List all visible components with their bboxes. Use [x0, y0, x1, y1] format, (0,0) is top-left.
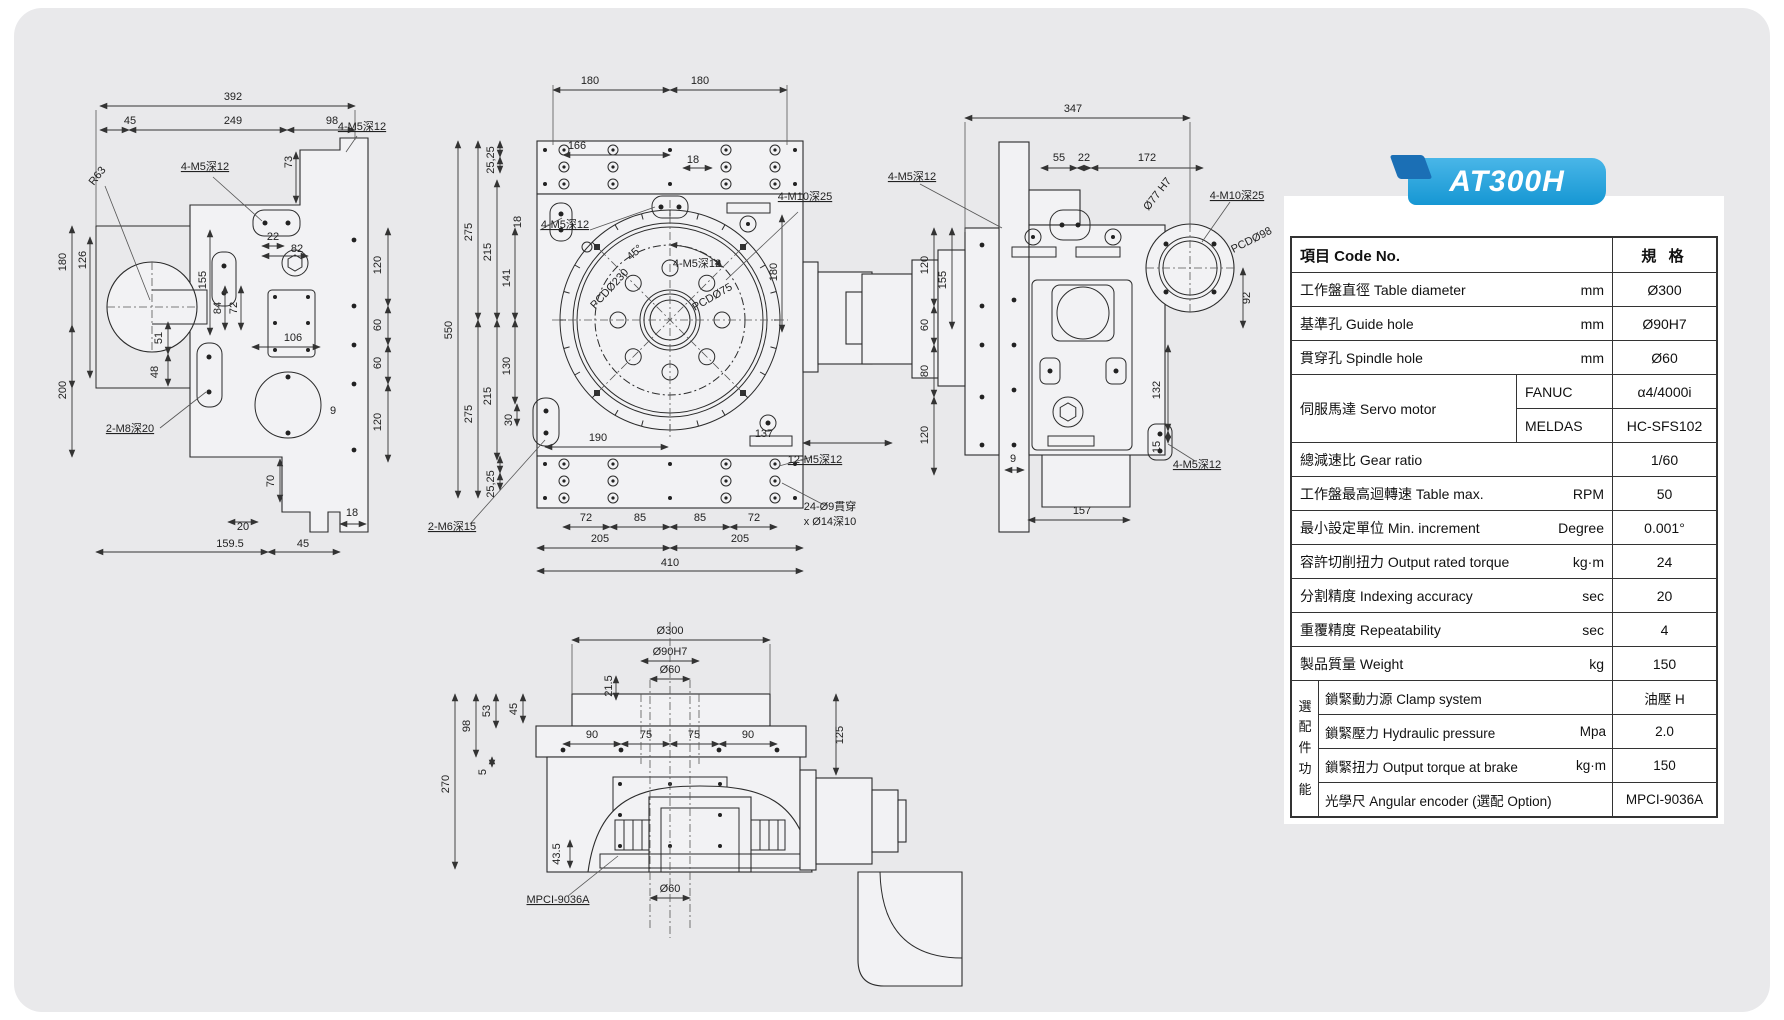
hole-dot — [562, 479, 565, 482]
hole-dot — [273, 295, 277, 299]
spec-value: 油壓 H — [1612, 681, 1716, 714]
dim-label: 60 — [372, 357, 384, 369]
spec-row: 重覆精度 Repeatabilitysec4 — [1292, 612, 1716, 646]
spec-row: 基準孔 Guide holemmØ90H7 — [1292, 306, 1716, 340]
dim-label: 21.5 — [603, 675, 615, 696]
hole-dot — [773, 148, 776, 151]
dim-label: 392 — [224, 91, 242, 103]
dim-label: 155 — [197, 271, 209, 289]
dim-label: 12-M5深12 — [788, 453, 842, 466]
dim-label: 180 — [768, 263, 780, 281]
spec-row: 鎖緊扭力 Output torque at brakekg·m150 — [1319, 748, 1716, 782]
spec-value: 20 — [1612, 579, 1716, 612]
leader-line — [470, 440, 545, 524]
spec-row: 製品質量 Weightkg150 — [1292, 646, 1716, 680]
hole-dot — [724, 148, 727, 151]
hole-dot — [775, 748, 780, 753]
model-badge-label: AT300H — [1449, 165, 1564, 199]
spec-value: MPCI-9036A — [1612, 783, 1716, 816]
hole-dot — [773, 479, 776, 482]
right-side-view — [846, 142, 1234, 532]
dim-label: 22 — [267, 231, 279, 243]
hole-dot — [773, 462, 776, 465]
dim-label: 275 — [463, 405, 475, 423]
spec-unit: RPM — [1573, 486, 1604, 502]
dim-label: 180 — [691, 75, 709, 87]
dim-label: 550 — [443, 321, 455, 339]
hole-dot — [306, 321, 310, 325]
hole-dot — [724, 165, 727, 168]
hole-dot — [1012, 388, 1017, 393]
spec-value: 150 — [1612, 749, 1716, 782]
dim-label: 180 — [581, 75, 599, 87]
dim-label: 80 — [919, 365, 931, 377]
hole-dot — [1012, 443, 1017, 448]
servo-brand: FANUC — [1517, 375, 1612, 408]
hole-dot — [668, 148, 672, 152]
spec-row: 最小設定單位 Min. incrementDegree0.001° — [1292, 510, 1716, 544]
hole-dot — [980, 243, 985, 248]
spec-row: 鎖緊壓力 Hydraulic pressureMpa2.0 — [1319, 714, 1716, 748]
spec-row-label: 重覆精度 Repeatabilitysec — [1292, 613, 1612, 646]
hole-dot — [980, 304, 985, 309]
dim-label: 9 — [1010, 453, 1016, 465]
dim-label: x Ø14深10 — [804, 515, 857, 528]
spec-row-label: 製品質量 Weightkg — [1292, 647, 1612, 680]
dim-label: 125 — [834, 726, 846, 744]
dim-label: 20 — [237, 521, 249, 533]
hole-dot — [306, 348, 310, 352]
spec-label-text: 貫穿孔 Spindle hole — [1300, 348, 1423, 368]
spec-row: 容許切削扭力 Output rated torquekg·m24 — [1292, 544, 1716, 578]
hole-dot — [352, 304, 357, 309]
spec-row-label: 工作盤直徑 Table diametermm — [1292, 273, 1612, 306]
spec-row-label: 鎖緊扭力 Output torque at brakekg·m — [1319, 749, 1612, 782]
hole-dot — [562, 182, 565, 185]
spec-row-label: 容許切削扭力 Output rated torquekg·m — [1292, 545, 1612, 578]
spec-header-spec: 規 格 — [1612, 238, 1716, 272]
leader-line — [920, 184, 1002, 228]
spec-row: 總減速比 Gear ratio1/60 — [1292, 442, 1716, 476]
dim-label: 155 — [937, 271, 949, 289]
dim-label: 205 — [591, 533, 609, 545]
dim-label: 120 — [372, 256, 384, 274]
hole-dot — [724, 479, 727, 482]
catalog-page: 3924524998R634-M5深124-M5深127322821206060… — [0, 0, 1784, 1020]
dim-label: 130 — [501, 357, 513, 375]
hole-dot — [562, 148, 565, 151]
spec-value: Ø90H7 — [1612, 307, 1716, 340]
spec-value: 0.001° — [1612, 511, 1716, 544]
hole-dot — [619, 748, 624, 753]
hole-dot — [543, 462, 547, 466]
spec-label-text: 工作盤直徑 Table diameter — [1300, 280, 1466, 300]
dim-label: 4-M5深12 — [888, 170, 936, 183]
dim-label: 60 — [372, 319, 384, 331]
dim-label: 106 — [284, 332, 302, 344]
hole-dot — [980, 443, 985, 448]
spec-table: 項目 Code No.規 格工作盤直徑 Table diametermmØ300… — [1290, 236, 1718, 818]
spec-row-label: 鎖緊動力源 Clamp system — [1319, 681, 1612, 714]
spec-row: 貫穿孔 Spindle holemmØ60 — [1292, 340, 1716, 374]
dim-label: 132 — [1151, 381, 1163, 399]
hole-dot — [980, 343, 985, 348]
dim-label: 75 — [640, 729, 652, 741]
spec-value: Ø60 — [1612, 341, 1716, 374]
spec-label-text: 鎖緊動力源 Clamp system — [1325, 688, 1482, 708]
spec-unit: Degree — [1558, 520, 1604, 536]
hole-dot — [306, 295, 310, 299]
spec-row-label: 分割精度 Indexing accuracysec — [1292, 579, 1612, 612]
spec-row-label: 基準孔 Guide holemm — [1292, 307, 1612, 340]
dim-label: 75 — [688, 729, 700, 741]
spec-row-label: 伺服馬達 Servo motor — [1292, 375, 1516, 442]
dim-label: 410 — [661, 557, 679, 569]
dim-label: 275 — [463, 223, 475, 241]
dim-label: 92 — [1241, 292, 1253, 304]
spec-row: 鎖緊動力源 Clamp system油壓 H — [1319, 681, 1716, 714]
dim-label: 120 — [919, 256, 931, 274]
dim-label: 73 — [283, 156, 295, 168]
dim-label: 4-M5深12 — [338, 120, 386, 133]
spec-option-group: 選 配 件 功 能鎖緊動力源 Clamp system油壓 H鎖緊壓力 Hydr… — [1292, 680, 1716, 816]
spec-row-label: 光學尺 Angular encoder (選配 Option) — [1319, 783, 1612, 816]
dim-label: 24-Ø9貫穿 — [804, 499, 857, 513]
dim-label: 98 — [326, 115, 338, 127]
dim-label: 72 — [748, 512, 760, 524]
dim-label: 4-M5深12 — [1173, 458, 1221, 471]
spec-value: 50 — [1612, 477, 1716, 510]
hole-dot — [793, 496, 797, 500]
dim-label: Ø60 — [660, 883, 681, 895]
dim-label: MPCI-9036A — [527, 894, 591, 906]
hole-dot — [562, 462, 565, 465]
spec-header-row: 項目 Code No.規 格 — [1292, 238, 1716, 272]
spec-label-text: 鎖緊扭力 Output torque at brake — [1325, 756, 1518, 776]
hole-dot — [611, 182, 614, 185]
spec-label-text: 鎖緊壓力 Hydraulic pressure — [1325, 722, 1495, 742]
hole-dot — [718, 813, 722, 817]
hole-dot — [543, 148, 547, 152]
hole-dot — [1212, 290, 1217, 295]
dim-label: 18 — [512, 216, 524, 228]
hole-dot — [273, 321, 277, 325]
hole-dot — [724, 462, 727, 465]
servo-brand: MELDAS — [1517, 408, 1612, 442]
hole-dot — [611, 496, 614, 499]
hole-dot — [543, 182, 547, 186]
spec-label-text: 容許切削扭力 Output rated torque — [1300, 552, 1509, 572]
dim-label: R63 — [87, 165, 109, 188]
hole-dot — [561, 748, 566, 753]
dim-label: 45 — [508, 703, 520, 715]
spec-value: 150 — [1612, 647, 1716, 680]
option-group-rows: 鎖緊動力源 Clamp system油壓 H鎖緊壓力 Hydraulic pre… — [1318, 681, 1716, 816]
hole-dot — [618, 844, 622, 848]
dim-label: PCDØ98 — [1229, 225, 1274, 256]
hole-dot — [773, 165, 776, 168]
dim-label: 18 — [346, 507, 358, 519]
dim-label: 30 — [503, 414, 515, 426]
dim-label: 70 — [265, 475, 277, 487]
hole-dot — [717, 748, 722, 753]
dim-label: Ø300 — [657, 625, 684, 637]
dim-label: 2-M8深20 — [106, 422, 154, 435]
spec-row: 分割精度 Indexing accuracysec20 — [1292, 578, 1716, 612]
dim-label: 45 — [124, 115, 136, 127]
spec-label-text: 工作盤最高迴轉速 Table max. — [1300, 484, 1484, 504]
spec-row: 工作盤最高迴轉速 Table max.RPM50 — [1292, 476, 1716, 510]
spec-label-text: 分割精度 Indexing accuracy — [1300, 586, 1473, 606]
dim-label: 22 — [1078, 152, 1090, 164]
spec-value: 2.0 — [1612, 715, 1716, 748]
dim-label: 85 — [634, 512, 646, 524]
spec-label-text: 光學尺 Angular encoder (選配 Option) — [1325, 790, 1552, 810]
spec-label-text: 重覆精度 Repeatability — [1300, 620, 1441, 640]
hole-dot — [668, 462, 672, 466]
option-group-label: 選 配 件 功 能 — [1292, 681, 1318, 816]
hole-dot — [773, 496, 776, 499]
hole-dot — [618, 813, 622, 817]
dim-label: 72 — [580, 512, 592, 524]
dim-label: 2-M6深15 — [428, 520, 476, 533]
spec-unit: Mpa — [1580, 724, 1606, 739]
dim-label: 72 — [228, 302, 240, 314]
hole-dot — [352, 448, 357, 453]
dim-label: 9 — [330, 405, 336, 417]
spec-value: 4 — [1612, 613, 1716, 646]
dim-label: 25,25 — [485, 470, 497, 498]
hole-dot — [611, 479, 614, 482]
dim-label: 141 — [501, 269, 513, 287]
spec-unit: sec — [1582, 588, 1604, 604]
model-badge: AT300H — [1408, 158, 1606, 205]
dim-label: 51 — [153, 332, 165, 344]
dim-label: 4-M5深12 — [541, 218, 589, 231]
hole-dot — [724, 496, 727, 499]
spec-unit: kg·m — [1573, 554, 1604, 570]
spec-value: 1/60 — [1612, 443, 1716, 476]
hole-dot — [793, 182, 797, 186]
hole-dot — [611, 462, 614, 465]
hole-dot — [668, 182, 672, 186]
spec-label-text: 總減速比 Gear ratio — [1300, 450, 1422, 470]
spec-unit: kg — [1589, 656, 1604, 672]
dim-label: 84 — [212, 302, 224, 314]
dim-label: 200 — [57, 381, 69, 399]
spec-row-label: 最小設定單位 Min. incrementDegree — [1292, 511, 1612, 544]
spec-row-label: 總減速比 Gear ratio — [1292, 443, 1612, 476]
dim-label: 4-M5深12 — [181, 160, 229, 173]
servo-value: α4/4000i — [1613, 375, 1716, 408]
hole-dot — [793, 148, 797, 152]
dim-label: 15 — [1151, 441, 1163, 453]
dim-label: 4-M10深25 — [778, 190, 832, 203]
dim-label: 120 — [919, 426, 931, 444]
hole-dot — [718, 844, 722, 848]
hole-dot — [1164, 290, 1169, 295]
dim-label: 43.5 — [551, 843, 563, 864]
hole-dot — [718, 782, 722, 786]
dim-label: 90 — [742, 729, 754, 741]
dim-label: 98 — [461, 720, 473, 732]
spec-unit: kg·m — [1576, 758, 1606, 773]
spec-header-item: 項目 Code No. — [1292, 238, 1612, 272]
spec-value: Ø300 — [1612, 273, 1716, 306]
dim-label: Ø90H7 — [653, 646, 688, 658]
spec-unit: mm — [1581, 316, 1604, 332]
spec-label-text: 最小設定單位 Min. increment — [1300, 518, 1480, 538]
dim-label: 120 — [372, 413, 384, 431]
spec-unit: sec — [1582, 622, 1604, 638]
dim-label: 4-M10深25 — [1210, 189, 1264, 202]
dim-label: 347 — [1064, 103, 1082, 115]
dim-label: 172 — [1138, 152, 1156, 164]
dim-label: Ø77 H7 — [1141, 176, 1174, 213]
hole-dot — [273, 348, 277, 352]
dim-label: 215 — [482, 243, 494, 261]
dim-label: 190 — [589, 432, 607, 444]
spec-row-label: 鎖緊壓力 Hydraulic pressureMpa — [1319, 715, 1612, 748]
dim-label: 60 — [919, 319, 931, 331]
hole-dot — [1012, 298, 1017, 303]
dim-label: 180 — [57, 253, 69, 271]
spec-unit: mm — [1581, 350, 1604, 366]
dim-label: Ø60 — [660, 664, 681, 676]
hole-dot — [562, 165, 565, 168]
left-side-view — [96, 138, 368, 532]
dim-label: 166 — [568, 140, 586, 152]
hole-dot — [611, 165, 614, 168]
servo-brand-col: FANUCMELDAS — [1516, 375, 1612, 442]
spec-row: 光學尺 Angular encoder (選配 Option)MPCI-9036… — [1319, 782, 1716, 816]
hole-dot — [1212, 242, 1217, 247]
dim-label: 159.5 — [216, 538, 244, 550]
dim-label: 85 — [694, 512, 706, 524]
hole-dot — [352, 382, 357, 387]
hole-dot — [1012, 343, 1017, 348]
dim-label: 126 — [77, 251, 89, 269]
dim-label: 4-M5深12 — [673, 257, 721, 270]
dim-label: 53 — [481, 705, 493, 717]
servo-value: HC-SFS102 — [1613, 408, 1716, 442]
dim-label: 55 — [1053, 152, 1065, 164]
dim-label: 205 — [731, 533, 749, 545]
spec-value: 24 — [1612, 545, 1716, 578]
dim-label: 18 — [687, 154, 699, 166]
hole-dot — [352, 343, 357, 348]
dim-label: 249 — [224, 115, 242, 127]
dim-label: 137 — [755, 428, 773, 440]
hole-dot — [1164, 242, 1169, 247]
hole-dot — [724, 182, 727, 185]
spec-unit: mm — [1581, 282, 1604, 298]
spec-row: 工作盤直徑 Table diametermmØ300 — [1292, 272, 1716, 306]
spec-row-label: 工作盤最高迴轉速 Table max.RPM — [1292, 477, 1612, 510]
dim-label: 25,25 — [485, 146, 497, 174]
dim-label: 90 — [586, 729, 598, 741]
hole-dot — [618, 782, 622, 786]
dim-label: 270 — [440, 775, 452, 793]
spec-row-servo: 伺服馬達 Servo motorFANUCMELDASα4/4000iHC-SF… — [1292, 374, 1716, 442]
dim-label: 82 — [291, 243, 303, 255]
hole-dot — [352, 238, 357, 243]
dim-label: 215 — [482, 387, 494, 405]
spec-label-text: 製品質量 Weight — [1300, 654, 1403, 674]
hole-dot — [611, 148, 614, 151]
hole-dot — [562, 496, 565, 499]
hole-dot — [773, 182, 776, 185]
dim-label: 45 — [297, 538, 309, 550]
hole-dot — [668, 496, 672, 500]
spec-row-label: 貫穿孔 Spindle holemm — [1292, 341, 1612, 374]
spec-label-text: 基準孔 Guide hole — [1300, 314, 1414, 334]
dim-label: 48 — [149, 366, 161, 378]
hole-dot — [543, 496, 547, 500]
dim-label: 157 — [1073, 505, 1091, 517]
servo-value-col: α4/4000iHC-SFS102 — [1612, 375, 1716, 442]
hole-dot — [980, 395, 985, 400]
dim-label: 5 — [477, 769, 489, 775]
